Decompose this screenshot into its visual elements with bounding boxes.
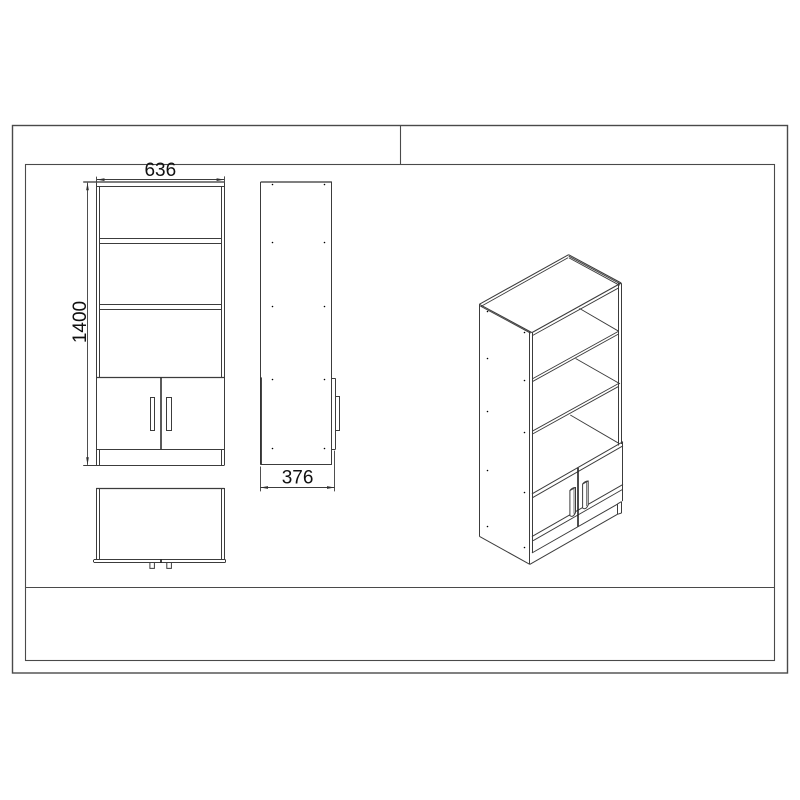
svg-text:1400: 1400 xyxy=(70,301,91,343)
svg-text:636: 636 xyxy=(144,160,176,181)
svg-text:376: 376 xyxy=(282,468,314,489)
